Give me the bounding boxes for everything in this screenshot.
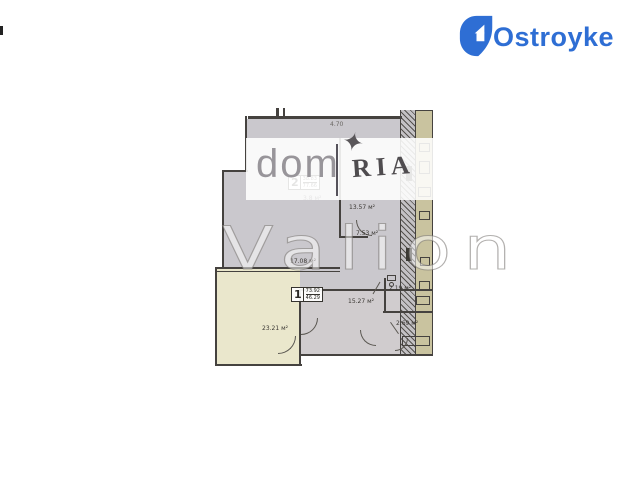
wall-left-lower xyxy=(215,267,217,366)
room-label-2321: 23.21 м² xyxy=(262,325,288,332)
room-label-1527: 15.27 м² xyxy=(348,298,374,305)
apartment1-total-area: 46.29 xyxy=(306,295,320,301)
wall-stub-a xyxy=(276,108,279,118)
room-label-219: 2.19 м² xyxy=(389,285,411,292)
wall-stub-b xyxy=(283,108,285,118)
room-label-269: 2.69 м² xyxy=(396,320,418,327)
apartment1-badge: 1 73.92 46.29 xyxy=(291,287,323,302)
screenshot-canvas: Ostroyke 4.70 3.8 м² 13.57 м² 7.53 м xyxy=(0,0,640,480)
fixture-shaft-7 xyxy=(416,296,430,305)
wall-room219-bottom xyxy=(383,311,433,313)
wall-corridor-bottom xyxy=(300,354,433,356)
wall-apartment1-bottom xyxy=(216,364,302,366)
valion-watermark: Valion xyxy=(222,214,524,284)
scan-artifact xyxy=(0,26,3,35)
domria-watermark-ria: RIA xyxy=(351,150,416,184)
wall-top xyxy=(248,116,402,119)
domria-watermark-divider xyxy=(336,144,338,196)
wall-left-step-h xyxy=(222,170,248,172)
domria-watermark-dom: dom xyxy=(256,142,340,187)
ostroyke-logo-text: Ostroyke xyxy=(493,22,614,53)
room-label-1357: 13.57 м² xyxy=(349,204,375,211)
dimension-label: 4.70 xyxy=(330,121,343,128)
apartment1-number: 1 xyxy=(292,288,303,301)
apartment1-living-area: 73.92 xyxy=(306,288,320,295)
ostroyke-logo: Ostroyke xyxy=(459,14,619,60)
